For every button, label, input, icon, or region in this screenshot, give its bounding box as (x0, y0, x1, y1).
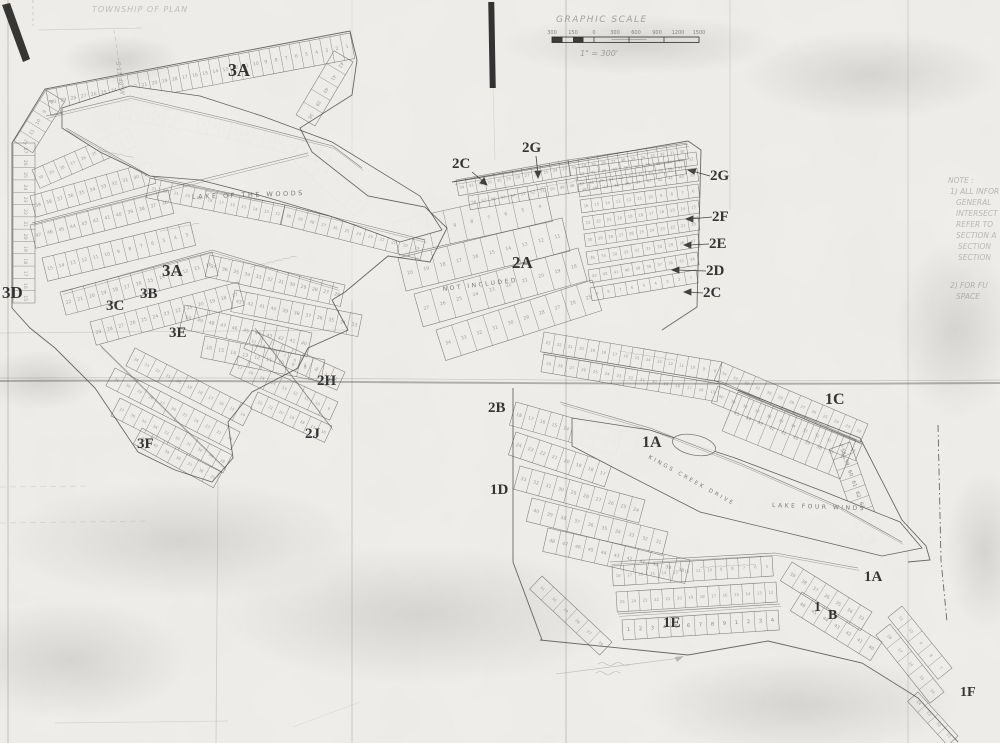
scanned-plat-map-page: 3029282726252423222120191817161514131211… (0, 0, 1000, 743)
paper-grain-overlay (0, 0, 1000, 743)
plat-map-canvas: 3029282726252423222120191817161514131211… (0, 0, 1000, 743)
